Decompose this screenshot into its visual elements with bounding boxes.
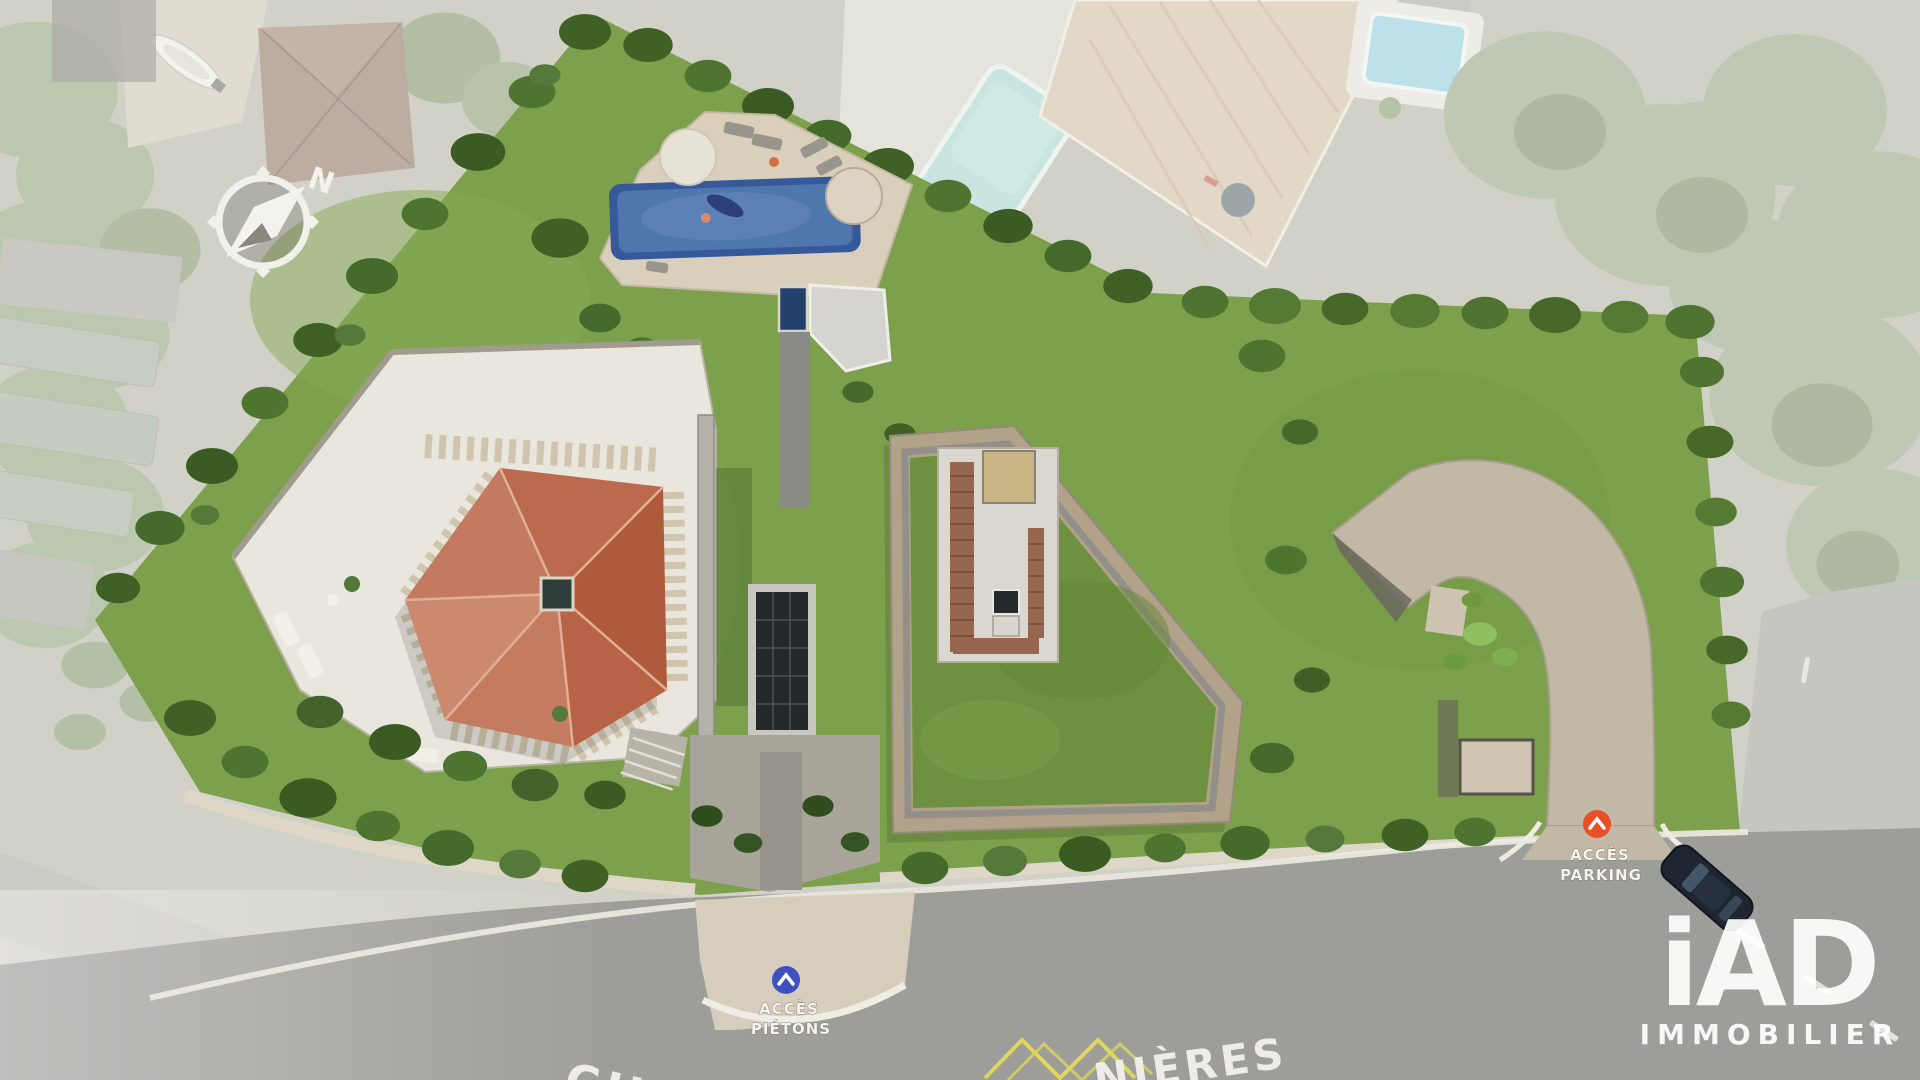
parking-access-label-line2: PARKING (1560, 866, 1642, 884)
terrace-plant (552, 706, 568, 722)
lap-pool (779, 287, 807, 331)
brand-logo-text: iAD (1659, 895, 1877, 1033)
villa-east-wall (698, 415, 714, 745)
parking-access-marker (1583, 810, 1611, 838)
orange-towel (769, 157, 779, 167)
parking-access-label-line1: ACCÈS (1570, 845, 1630, 864)
parasol-west (660, 129, 716, 185)
parasol-east (826, 168, 882, 224)
garage-ramp (1460, 740, 1533, 794)
ramp-landing (1425, 586, 1469, 637)
terrace-plant (344, 576, 360, 592)
pedestrian-access-label-line1: ACCÈS (759, 999, 819, 1018)
sand-patch (983, 451, 1035, 503)
site-plan-canvas: ACCÈS PIÉTONS ACCÈS PARKING CHEM NIÈRES (0, 0, 1920, 1080)
garden-path (780, 332, 810, 508)
roof-courtyard (938, 448, 1058, 662)
swimming-pool (609, 176, 862, 261)
roof-skylight (541, 578, 573, 610)
roof-hatch (993, 590, 1019, 614)
pedestrian-access-label-line2: PIÉTONS (751, 1019, 831, 1038)
aerial-site-plan: ACCÈS PIÉTONS ACCÈS PARKING CHEM NIÈRES (0, 0, 1920, 1080)
brand-watermark: iAD IMMOBILIER (1640, 895, 1901, 1051)
brand-word: IMMOBILIER (1640, 1018, 1901, 1051)
pedestrian-access-marker (772, 966, 800, 994)
